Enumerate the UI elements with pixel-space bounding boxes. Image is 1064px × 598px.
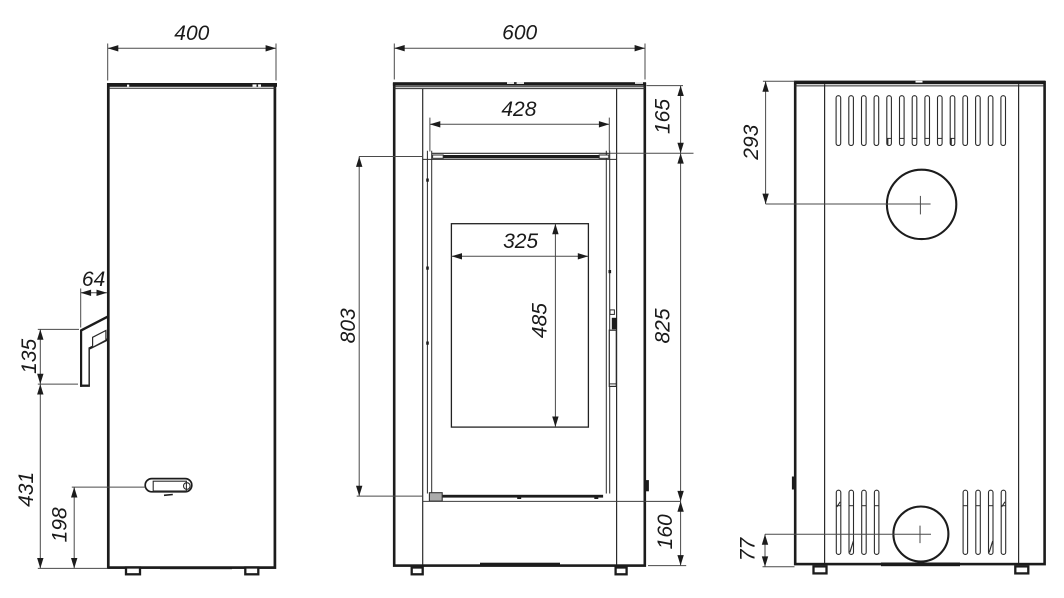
svg-text:135: 135 [18, 339, 41, 374]
svg-text:803: 803 [337, 308, 360, 343]
svg-text:600: 600 [502, 22, 537, 45]
svg-text:160: 160 [654, 514, 677, 549]
svg-text:325: 325 [503, 230, 538, 253]
svg-text:77: 77 [737, 537, 760, 562]
svg-text:64: 64 [82, 268, 105, 291]
svg-text:165: 165 [652, 99, 675, 134]
svg-text:400: 400 [174, 22, 209, 45]
svg-text:198: 198 [48, 507, 71, 542]
svg-text:485: 485 [529, 303, 552, 338]
svg-text:431: 431 [15, 472, 38, 507]
svg-text:825: 825 [652, 308, 675, 343]
svg-text:428: 428 [501, 98, 536, 121]
svg-text:293: 293 [740, 124, 763, 160]
